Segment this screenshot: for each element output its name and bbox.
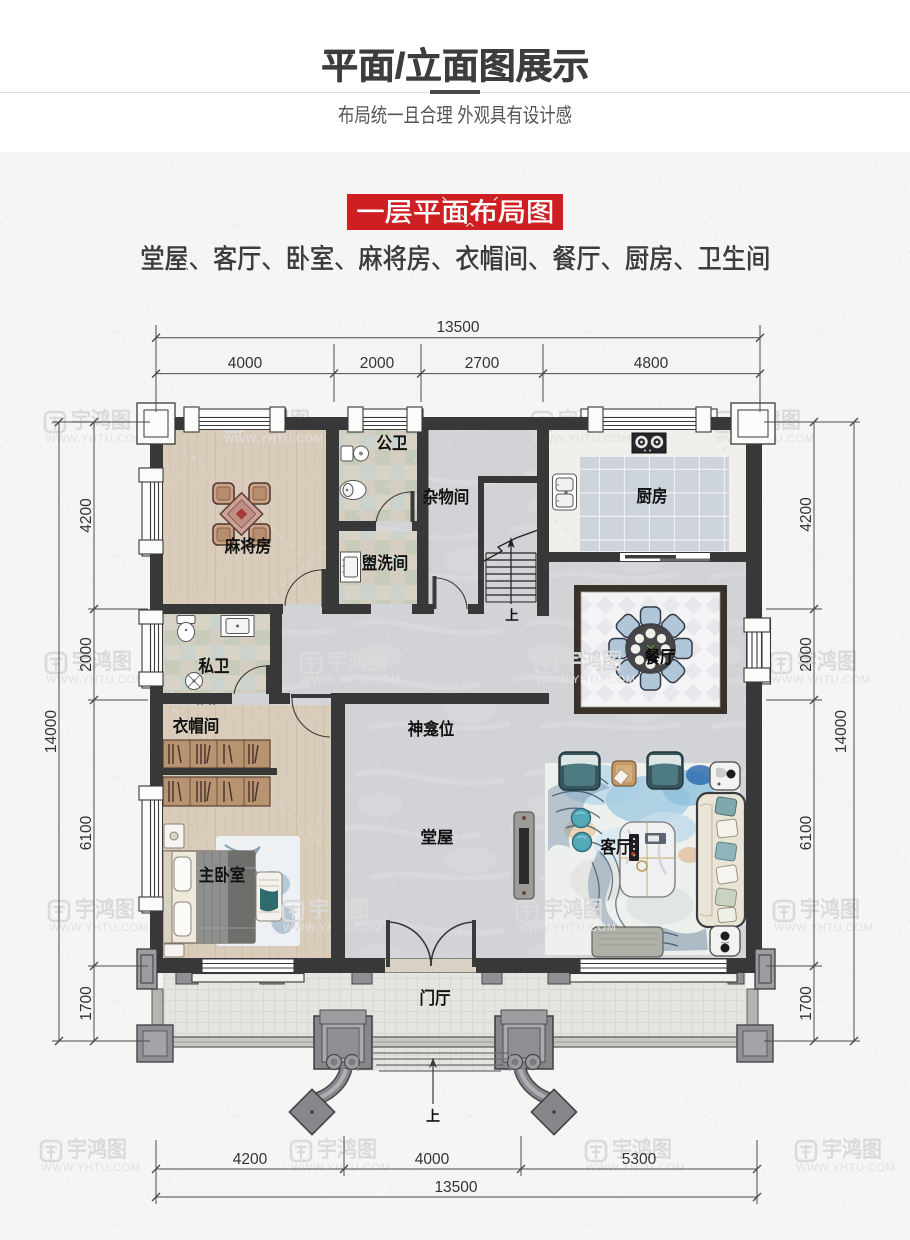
- svg-text:2700: 2700: [465, 355, 500, 372]
- svg-text:2000: 2000: [78, 637, 95, 672]
- svg-text:平面/立面图展示: 平面/立面图展示: [321, 46, 589, 87]
- svg-text:1700: 1700: [78, 986, 95, 1021]
- svg-text:14000: 14000: [833, 710, 850, 753]
- svg-text:堂屋: 堂屋: [421, 827, 454, 847]
- svg-text:神龛位: 神龛位: [408, 719, 455, 739]
- svg-text:麻将房: 麻将房: [224, 536, 271, 556]
- svg-text:5300: 5300: [622, 1151, 657, 1168]
- svg-text:厨房: 厨房: [637, 486, 668, 506]
- svg-text:上: 上: [505, 608, 519, 623]
- svg-text:布局统一且合理 外观具有设计感: 布局统一且合理 外观具有设计感: [338, 104, 572, 127]
- svg-text:客厅: 客厅: [600, 837, 632, 857]
- svg-text:14000: 14000: [43, 710, 60, 753]
- svg-text:私卫: 私卫: [199, 657, 230, 676]
- svg-text:4800: 4800: [634, 355, 669, 372]
- svg-text:杂物间: 杂物间: [423, 487, 470, 507]
- svg-text:6100: 6100: [798, 815, 815, 850]
- svg-text:6100: 6100: [78, 815, 95, 850]
- svg-text:4200: 4200: [78, 498, 95, 533]
- svg-text:公卫: 公卫: [377, 434, 408, 453]
- svg-text:上: 上: [426, 1108, 440, 1124]
- svg-text:餐厅: 餐厅: [645, 647, 676, 667]
- svg-text:4000: 4000: [415, 1151, 450, 1168]
- svg-text:4000: 4000: [228, 355, 263, 372]
- svg-text:1700: 1700: [798, 986, 815, 1021]
- svg-text:2000: 2000: [798, 637, 815, 672]
- svg-text:主卧室: 主卧室: [199, 865, 246, 885]
- svg-text:门厅: 门厅: [420, 988, 451, 1008]
- svg-text:13500: 13500: [434, 1179, 477, 1196]
- svg-text:13500: 13500: [436, 319, 479, 336]
- svg-text:4200: 4200: [233, 1151, 268, 1168]
- svg-text:衣帽间: 衣帽间: [173, 716, 220, 736]
- svg-text:盥洗间: 盥洗间: [362, 553, 409, 573]
- svg-text:4200: 4200: [798, 497, 815, 532]
- svg-text:2000: 2000: [360, 355, 395, 372]
